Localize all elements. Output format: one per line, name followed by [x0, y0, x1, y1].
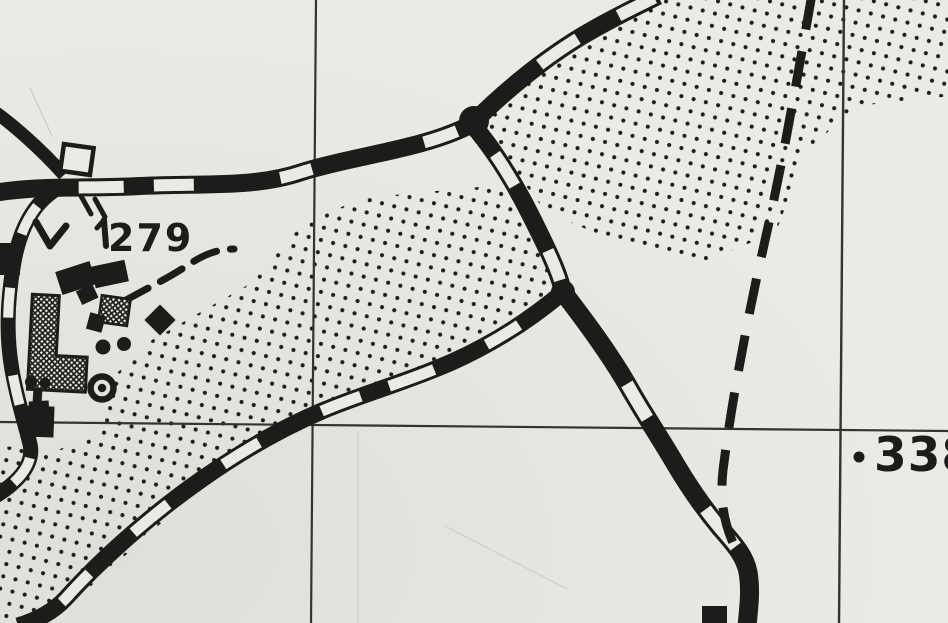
spot-height-338-label: 338	[874, 428, 948, 483]
round-structure	[96, 340, 111, 355]
building-bottom-right	[702, 606, 727, 623]
building-square-on-grid	[21, 405, 54, 437]
road-junction-south	[551, 280, 575, 304]
spot-height-279: 279	[108, 216, 193, 260]
map-canvas: 279 338	[0, 0, 948, 623]
spot-height-dot	[854, 452, 865, 463]
spot-height-279-label: 279	[108, 216, 193, 260]
hollow-building-icon	[60, 144, 93, 175]
building-left-edge	[0, 243, 20, 275]
round-structure	[117, 337, 131, 351]
topographic-map: 279 338	[0, 0, 948, 623]
road-junction-north	[459, 106, 489, 136]
